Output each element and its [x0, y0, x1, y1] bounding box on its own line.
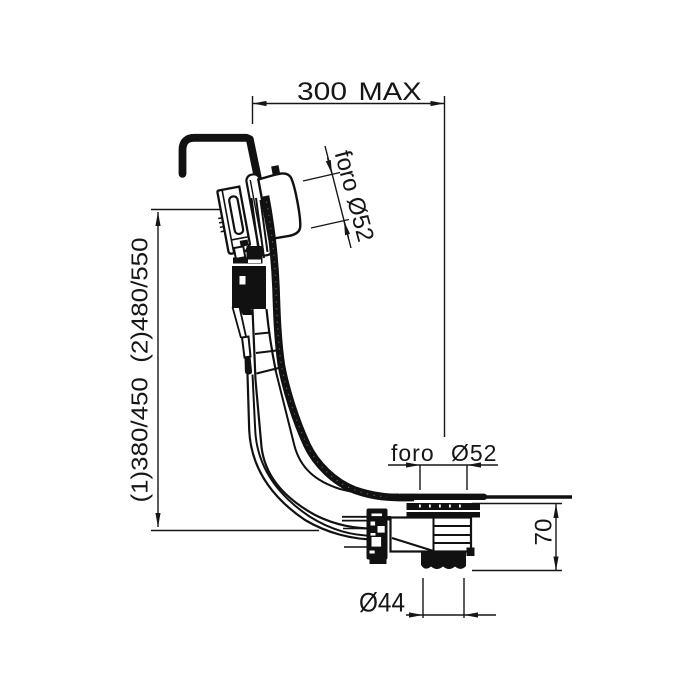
- svg-text:Ø44: Ø44: [359, 588, 405, 618]
- svg-text:MAX: MAX: [359, 78, 422, 106]
- svg-text:(1)380/450 (2)480/550: (1)380/450 (2)480/550: [127, 238, 153, 503]
- svg-text:Ø52: Ø52: [451, 440, 497, 466]
- svg-text:foro: foro: [391, 440, 435, 466]
- svg-text:70: 70: [531, 519, 558, 546]
- svg-text:300: 300: [297, 78, 347, 106]
